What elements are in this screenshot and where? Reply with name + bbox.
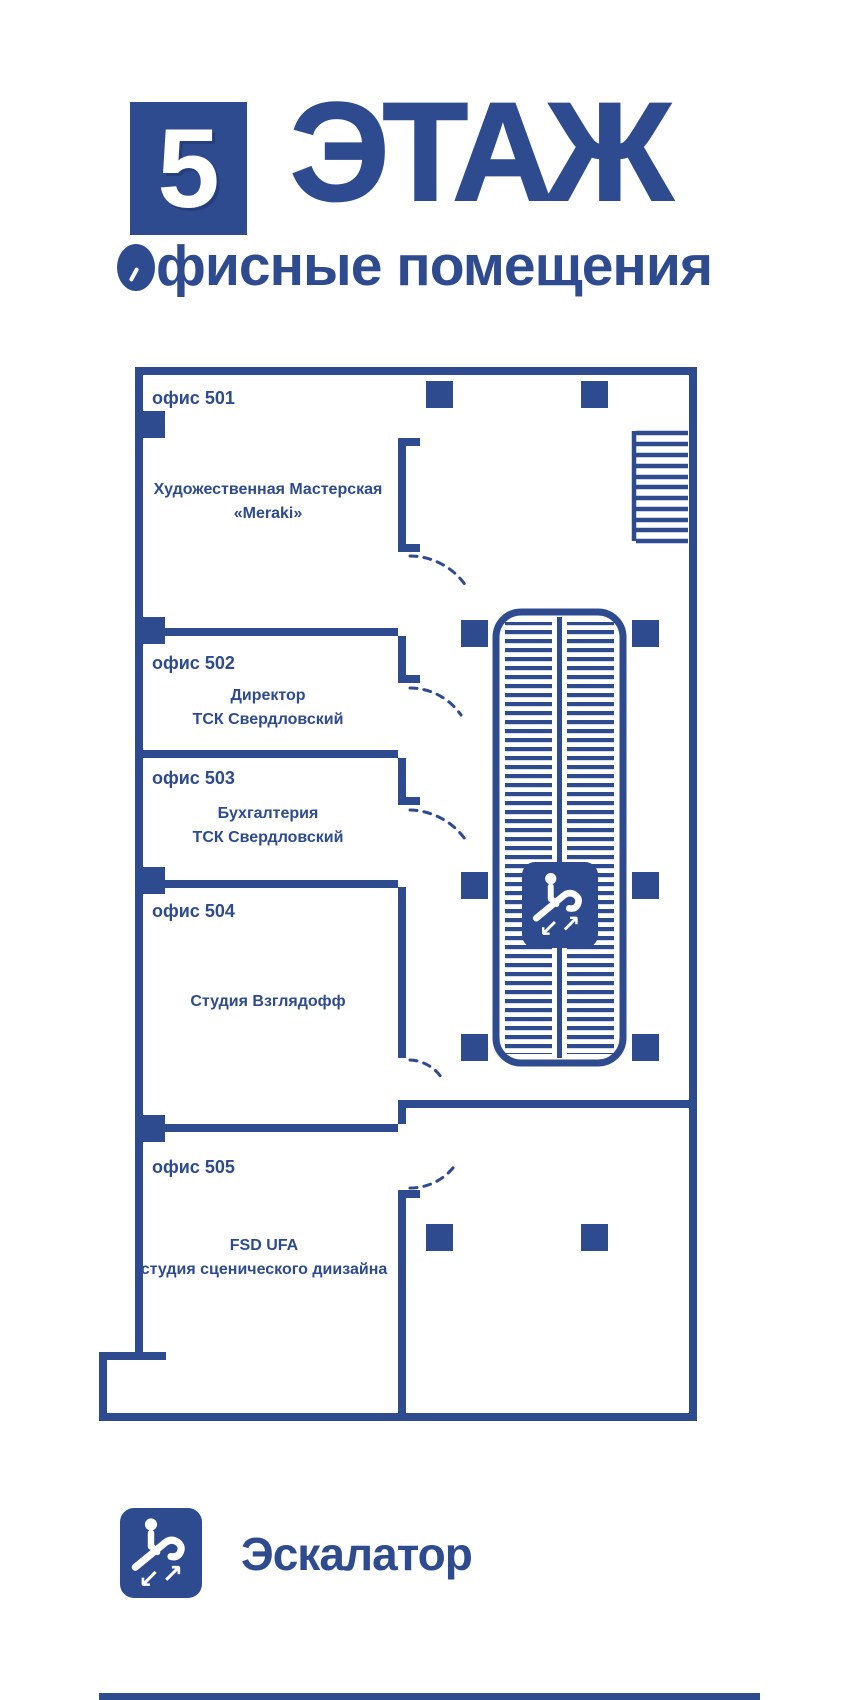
floor-number-box: 5 (130, 102, 247, 235)
office-503-label: офис 503 (152, 768, 235, 789)
office-501-tenant: Художественная Мастерская «Meraki» (138, 478, 398, 526)
office-502-label: офис 502 (152, 653, 235, 674)
footer-bar (99, 1693, 760, 1700)
stairs-icon (634, 431, 688, 541)
letter-o-disc-icon (117, 244, 155, 291)
floor-subtitle-text: фисные помещения (156, 234, 712, 298)
floor-word: ЭТАЖ (290, 82, 666, 222)
office-504-tenant: Студия Взглядофф (138, 990, 398, 1014)
office-501-label: офис 501 (152, 388, 235, 409)
office-505-tenant: FSD UFA студия сценического диизайна (128, 1234, 400, 1282)
office-503-tenant: Бухгалтерия ТСК Свердловский (138, 802, 398, 850)
floor-subtitle: фисные помещения (117, 238, 712, 295)
door-swing-arcs (410, 556, 467, 1188)
floor-sign-page: 5 ЭТАЖ фисные помещения ↙ ↗ (0, 0, 858, 1700)
floor-number: 5 (157, 113, 219, 225)
office-502-tenant: Директор ТСК Свердловский (138, 684, 398, 732)
office-504-label: офис 504 (152, 901, 235, 922)
office-505-label: офис 505 (152, 1157, 235, 1178)
escalator-icon (522, 862, 598, 948)
legend-escalator-icon (120, 1508, 202, 1598)
column-squares (426, 381, 659, 1251)
escalator-shaft (496, 612, 623, 1063)
legend-escalator-label: Эскалатор (241, 1528, 472, 1580)
